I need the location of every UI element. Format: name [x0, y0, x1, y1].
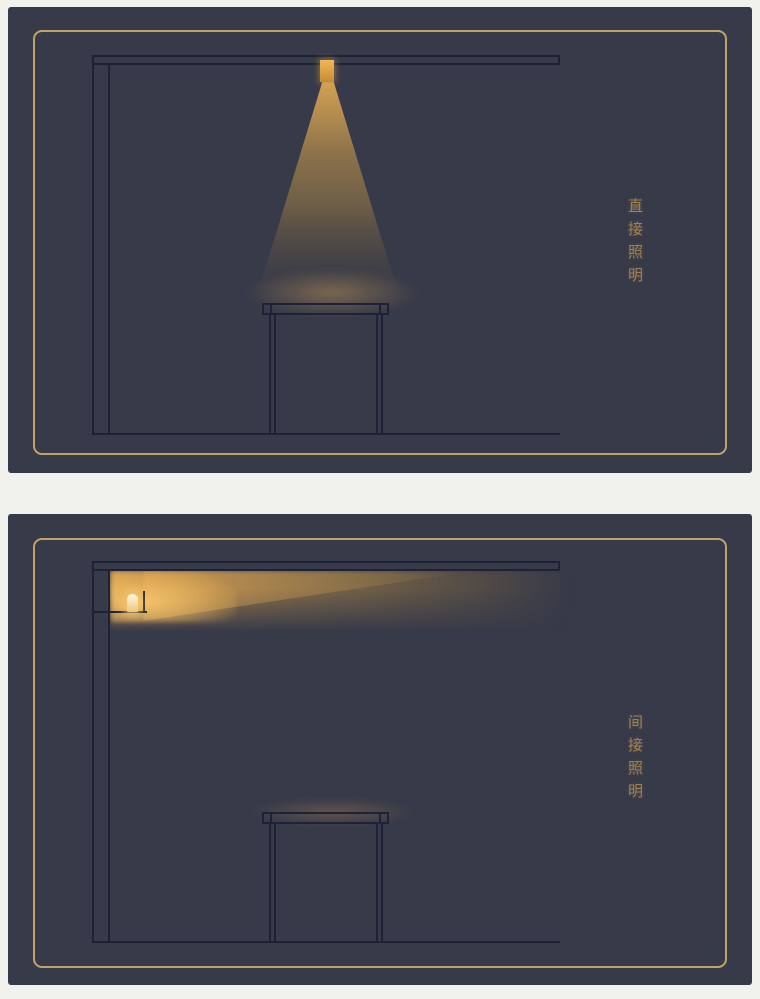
left-wall-inner-line — [108, 569, 110, 943]
floor-line — [92, 433, 560, 435]
left-wall-inner-line — [108, 63, 110, 435]
ceiling-slab — [92, 561, 560, 571]
indirect-lighting-panel: 间接照明 — [8, 514, 752, 985]
spotlight-fixture-icon — [320, 60, 334, 82]
direct-lighting-panel: 直接照明 — [8, 7, 752, 473]
table-leg-right — [376, 315, 383, 433]
cove-baffle-right-line — [143, 591, 145, 613]
table-leg-right — [376, 824, 383, 941]
table-leg-left — [269, 824, 276, 941]
left-wall-outer-line — [92, 561, 94, 943]
light-cone — [260, 81, 396, 295]
floor-line — [92, 941, 560, 943]
caption-direct-lighting: 直接照明 — [627, 198, 642, 290]
table-top — [262, 303, 389, 315]
table-top — [262, 812, 389, 824]
table-leg-left — [269, 315, 276, 433]
cove-baffle-bottom-line — [92, 611, 147, 613]
caption-indirect-lighting: 间接照明 — [627, 714, 642, 806]
cove-lamp-icon — [127, 594, 138, 612]
left-wall-outer-line — [92, 55, 94, 435]
page-background: 直接照明 间接照明 — [0, 0, 760, 999]
